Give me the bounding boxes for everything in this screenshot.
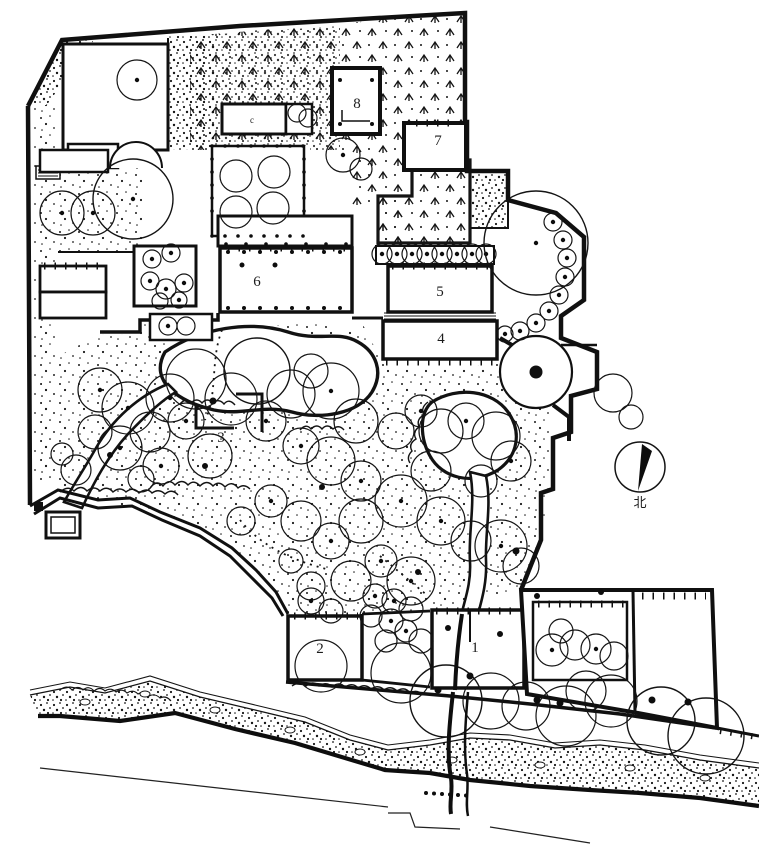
feature-dot <box>202 463 208 469</box>
feature-dot <box>534 593 540 599</box>
tree-trunk-dot <box>547 309 551 313</box>
tree-trunk-dot <box>440 252 444 256</box>
tree-trunk-dot <box>409 579 413 583</box>
column-dot <box>290 250 294 254</box>
column-dot <box>370 122 374 126</box>
feature-dot <box>534 697 541 704</box>
garden-plan-drawing: 北 1 2 3 4 5 6 7 8 c <box>0 0 759 845</box>
column-dot <box>370 78 374 82</box>
column-dot <box>210 183 214 187</box>
tree-trunk-dot <box>565 256 569 260</box>
tree-trunk-dot <box>269 499 273 503</box>
tree-trunk-dot <box>98 388 102 392</box>
column-dot <box>210 144 214 148</box>
pavilion <box>500 336 572 408</box>
stepping-stone-dot <box>440 792 444 796</box>
column-dot <box>236 144 240 148</box>
feature-dot <box>467 673 474 680</box>
tree-trunk-dot <box>561 238 565 242</box>
tree-trunk-dot <box>470 252 474 256</box>
feature-dot <box>557 700 564 707</box>
feature-dot <box>435 687 442 694</box>
site-plan: 北 1 2 3 4 5 6 7 8 c <box>0 0 759 845</box>
outer-wall-west <box>28 106 30 505</box>
tree-trunk-dot <box>379 559 383 563</box>
building-6-upper-hall <box>218 216 352 246</box>
stepping-stone-dot <box>432 792 436 796</box>
tree-trunk-dot <box>359 479 363 483</box>
tree-trunk-dot <box>455 252 459 256</box>
column-dot <box>273 263 278 268</box>
tree-trunk-dot <box>594 647 598 651</box>
feature-dot <box>107 452 113 458</box>
tree-trunk-dot <box>150 257 154 261</box>
north-label: 北 <box>633 496 646 511</box>
label-area-7: 7 <box>434 133 442 149</box>
column-dot <box>338 250 342 254</box>
tree-trunk-dot <box>341 153 345 157</box>
column-dot <box>242 250 246 254</box>
tree-trunk-dot <box>419 409 423 413</box>
tree-trunk-dot <box>309 599 313 603</box>
tree-trunk-dot <box>399 499 403 503</box>
tree-trunk-dot <box>177 298 181 302</box>
column-dot <box>322 250 326 254</box>
feature-dot <box>210 398 217 405</box>
tree-trunk-dot <box>563 275 567 279</box>
feature-dot <box>319 484 325 490</box>
tree-trunk-dot <box>425 252 429 256</box>
column-dot <box>262 144 266 148</box>
tree-trunk-dot <box>534 241 538 245</box>
column-dot <box>304 242 308 246</box>
feature-dot <box>497 631 503 637</box>
tree-trunk-dot <box>518 329 522 333</box>
tree-trunk-dot <box>557 293 561 297</box>
column-dot <box>242 306 246 310</box>
tree-trunk-dot <box>126 406 130 410</box>
column-dot <box>274 306 278 310</box>
label-area-8: 8 <box>353 96 361 112</box>
column-dot <box>210 234 214 238</box>
feature-dot <box>685 699 692 706</box>
label-area-5: 5 <box>436 284 444 300</box>
column-dot <box>262 234 266 238</box>
column-dot <box>324 242 328 246</box>
feature-dot <box>598 589 604 595</box>
tree-trunk-dot <box>329 539 333 543</box>
tree-trunk-dot <box>169 251 173 255</box>
column-dot <box>226 250 230 254</box>
tree-trunk-dot <box>404 629 408 633</box>
tree-trunk-dot <box>135 78 139 82</box>
column-dot <box>306 250 310 254</box>
tree-trunk-dot <box>439 519 443 523</box>
tree-trunk-dot <box>392 599 396 603</box>
column-dot <box>275 144 279 148</box>
feature-dot <box>415 569 421 575</box>
column-dot <box>338 122 342 126</box>
column-dot <box>302 209 306 213</box>
column-dot <box>244 242 248 246</box>
tree-trunk-dot <box>373 594 377 598</box>
column-dot <box>264 242 268 246</box>
tree-trunk-dot <box>148 279 152 283</box>
feature-dot <box>513 548 520 555</box>
tree-trunk-dot <box>299 444 303 448</box>
tree-trunk-dot <box>380 252 384 256</box>
tree-trunk-dot <box>166 324 170 328</box>
pavilion-core <box>530 366 543 379</box>
tree-trunk-dot <box>184 419 188 423</box>
column-dot <box>224 242 228 246</box>
column-dot <box>258 250 262 254</box>
column-dot <box>338 78 342 82</box>
tree-trunk-dot <box>410 252 414 256</box>
column-dot <box>249 234 253 238</box>
label-area-6: 6 <box>253 274 261 290</box>
column-dot <box>223 144 227 148</box>
column-dot <box>210 196 214 200</box>
label-area-2: 2 <box>316 641 324 657</box>
tree-trunk-dot <box>464 419 468 423</box>
column-dot <box>223 234 227 238</box>
column-dot <box>284 242 288 246</box>
column-dot <box>288 144 292 148</box>
tree-trunk-dot <box>503 332 507 336</box>
column-dot <box>322 306 326 310</box>
tree-trunk-dot <box>159 464 163 468</box>
stepping-stone-dot <box>456 793 460 797</box>
column-dot <box>210 209 214 213</box>
column-dot <box>258 306 262 310</box>
column-dot <box>275 234 279 238</box>
column-dot <box>236 234 240 238</box>
tree-trunk-dot <box>509 459 513 463</box>
tree-trunk-dot <box>118 446 122 450</box>
tree-trunk-dot <box>131 197 135 201</box>
tree-trunk-dot <box>389 619 393 623</box>
tree-trunk-dot <box>329 389 333 393</box>
tree-trunk-dot <box>499 544 503 548</box>
feature-dot <box>445 625 451 631</box>
column-dot <box>249 144 253 148</box>
northwest-planting <box>168 36 215 150</box>
tree-trunk-dot <box>164 287 168 291</box>
label-area-1: 1 <box>471 640 479 656</box>
column-dot <box>288 234 292 238</box>
tree-trunk-dot <box>534 321 538 325</box>
column-dot <box>302 170 306 174</box>
column-dot <box>302 157 306 161</box>
column-dot <box>274 250 278 254</box>
tree-trunk-dot <box>550 648 554 652</box>
tree-trunk-dot <box>182 281 186 285</box>
column-dot <box>210 157 214 161</box>
column-dot <box>210 170 214 174</box>
column-dot <box>338 306 342 310</box>
tree-trunk-dot <box>551 220 555 224</box>
column-dot <box>290 306 294 310</box>
building-6 <box>220 248 352 312</box>
tree-trunk-dot <box>264 419 268 423</box>
annex-furniture-mark: c <box>250 115 254 125</box>
tree-trunk-dot <box>395 252 399 256</box>
column-dot <box>302 183 306 187</box>
label-area-3: 3 <box>217 430 225 446</box>
column-dot <box>301 144 305 148</box>
stepping-stone-dot <box>424 791 428 795</box>
column-dot <box>344 242 348 246</box>
column-dot <box>302 196 306 200</box>
column-dot <box>306 306 310 310</box>
feature-dot <box>649 697 656 704</box>
column-dot <box>226 306 230 310</box>
tree-trunk-dot <box>60 211 64 215</box>
label-area-4: 4 <box>437 331 445 347</box>
column-dot <box>240 263 245 268</box>
column-dot <box>301 234 305 238</box>
